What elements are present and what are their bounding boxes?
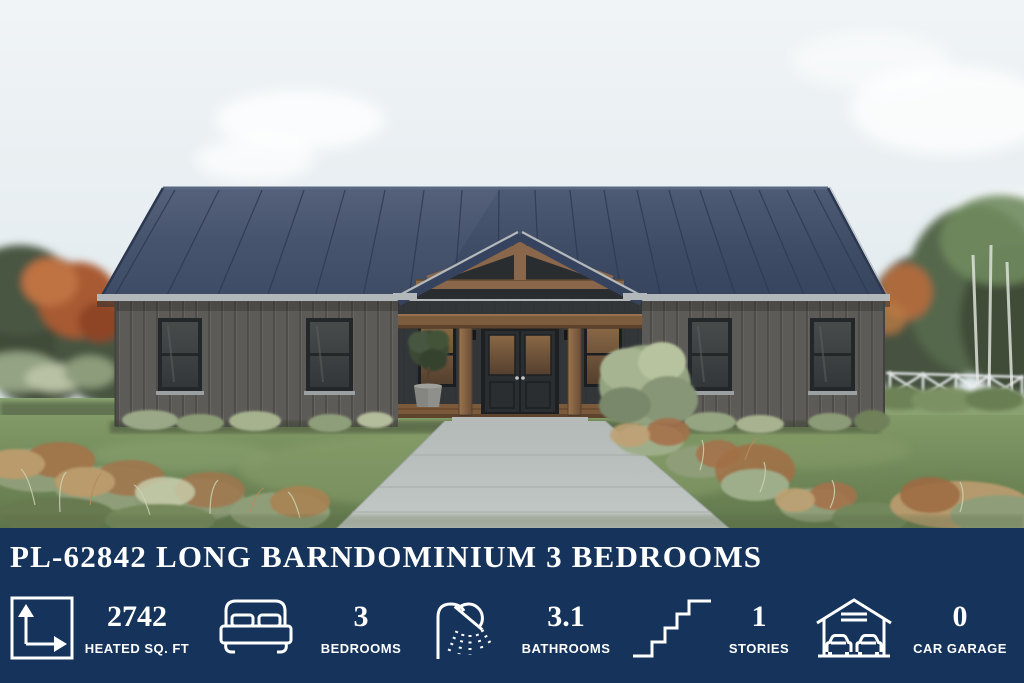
stat-label: STORIES xyxy=(729,641,789,656)
floor-area-icon xyxy=(10,596,74,660)
stairs-icon xyxy=(630,597,718,659)
truss-king-post xyxy=(514,241,526,280)
stat-value: 2742 xyxy=(107,601,167,633)
plan-title: PL-62842 LONG BARNDOMINIUM 3 BEDROOMS xyxy=(10,539,762,575)
porch-post xyxy=(459,328,472,415)
stat-label: HEATED SQ. FT xyxy=(85,641,189,656)
house-plan-card: PL-62842 LONG BARNDOMINIUM 3 BEDROOMS 27… xyxy=(0,0,1024,683)
stat-label: BATHROOMS xyxy=(522,641,611,656)
stat-bathrooms: 3.1 BATHROOMS xyxy=(427,592,635,664)
bed-icon xyxy=(212,595,300,661)
garage-icon xyxy=(814,594,894,662)
window xyxy=(686,318,734,395)
olive-shrub xyxy=(599,342,698,430)
house xyxy=(97,187,890,427)
foreground-shade xyxy=(0,515,1024,529)
left-wing-wall xyxy=(115,301,398,427)
double-front-doors xyxy=(481,327,559,414)
stat-value: 3 xyxy=(354,601,369,633)
house-exterior-rendering xyxy=(0,0,1024,529)
fence-shrubs xyxy=(870,386,1024,413)
stat-label: BEDROOMS xyxy=(321,641,402,656)
stat-bedrooms: 3 BEDROOMS xyxy=(212,592,422,664)
info-banner: PL-62842 LONG BARNDOMINIUM 3 BEDROOMS 27… xyxy=(0,528,1024,683)
stat-value: 0 xyxy=(953,601,968,633)
porch-post xyxy=(568,328,581,415)
window xyxy=(808,318,857,395)
shower-icon xyxy=(427,593,497,663)
window xyxy=(304,318,355,395)
porch-step xyxy=(452,417,588,424)
stat-label: CAR GARAGE xyxy=(913,641,1007,656)
window xyxy=(156,318,204,395)
stat-value: 1 xyxy=(752,601,767,633)
truss-beam xyxy=(416,280,624,289)
stat-stories: 1 STORIES xyxy=(630,592,800,664)
stat-value: 3.1 xyxy=(547,601,585,633)
stat-heated-sqft: 2742 HEATED SQ. FT xyxy=(10,592,200,664)
stat-car-garage: 0 CAR GARAGE xyxy=(814,592,1024,664)
